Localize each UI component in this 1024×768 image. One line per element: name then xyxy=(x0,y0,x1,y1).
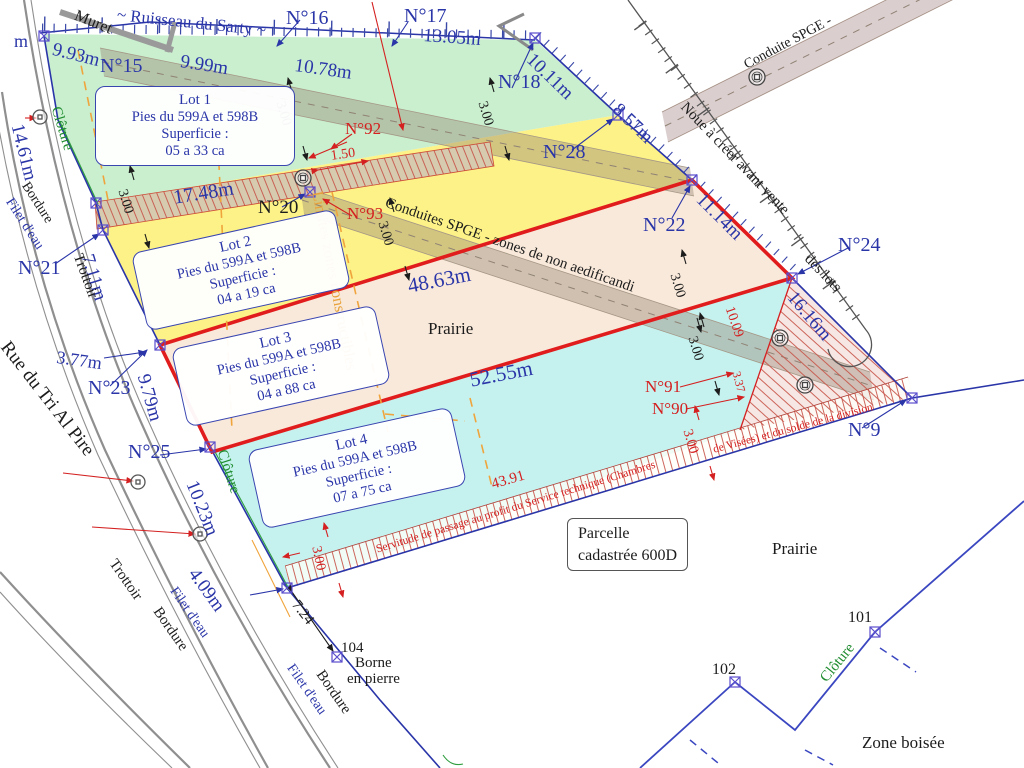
neighbor-boundary xyxy=(640,501,1024,768)
lot1-sup: Superficie : xyxy=(106,126,284,143)
point-label-n15: N°15 xyxy=(100,56,142,76)
label-en-pierre: en pierre xyxy=(347,672,400,687)
lot1-owners: Pies du 599A et 598B xyxy=(106,109,284,126)
point-label-n91: N°91 xyxy=(645,378,681,395)
point-label-n24: N°24 xyxy=(838,235,880,255)
point-label-n16: N°16 xyxy=(286,8,328,28)
point-label-n22: N°22 xyxy=(643,215,685,235)
point-label-n28: N°28 xyxy=(543,142,585,162)
point-label-n20: N°20 xyxy=(258,198,298,217)
point-label-n25: N°25 xyxy=(128,442,170,462)
label-101: 101 xyxy=(848,610,872,626)
point-label-n92: N°92 xyxy=(345,120,381,137)
point-label-n21: N°21 xyxy=(18,258,60,278)
lot1-info-box: Lot 1 Pies du 599A et 598B Superficie : … xyxy=(95,86,295,166)
label-zone-boisee: Zone boisée xyxy=(862,734,945,751)
label-prairie-1: Prairie xyxy=(428,320,473,337)
point-label-n90: N°90 xyxy=(652,400,688,417)
label-prairie-2: Prairie xyxy=(772,540,817,557)
parcel-note-line1: Parcelle xyxy=(578,523,677,545)
label-borne: Borne xyxy=(355,656,392,671)
lot1-area: 05 a 33 ca xyxy=(106,143,284,160)
pipe-band-top xyxy=(662,0,1024,142)
point-label-n9: N°9 xyxy=(848,420,880,440)
parcel-note-line2: cadastrée 600D xyxy=(578,545,677,567)
dim-13-05m: 13.05m xyxy=(423,26,482,49)
cadastral-plan: ~ Ruisseau du Sarty ~ Muret m N°16 N°17 … xyxy=(0,0,1024,768)
parcel-note-box: Parcelle cadastrée 600D xyxy=(567,518,688,571)
label-102: 102 xyxy=(712,662,736,678)
point-label-n93: N°93 xyxy=(347,205,383,222)
point-label-n23: N°23 xyxy=(88,378,130,398)
label-104: 104 xyxy=(341,641,364,656)
lot1-title: Lot 1 xyxy=(106,92,284,109)
label-m-cut: m xyxy=(14,32,28,50)
point-label-n17: N°17 xyxy=(404,6,446,26)
